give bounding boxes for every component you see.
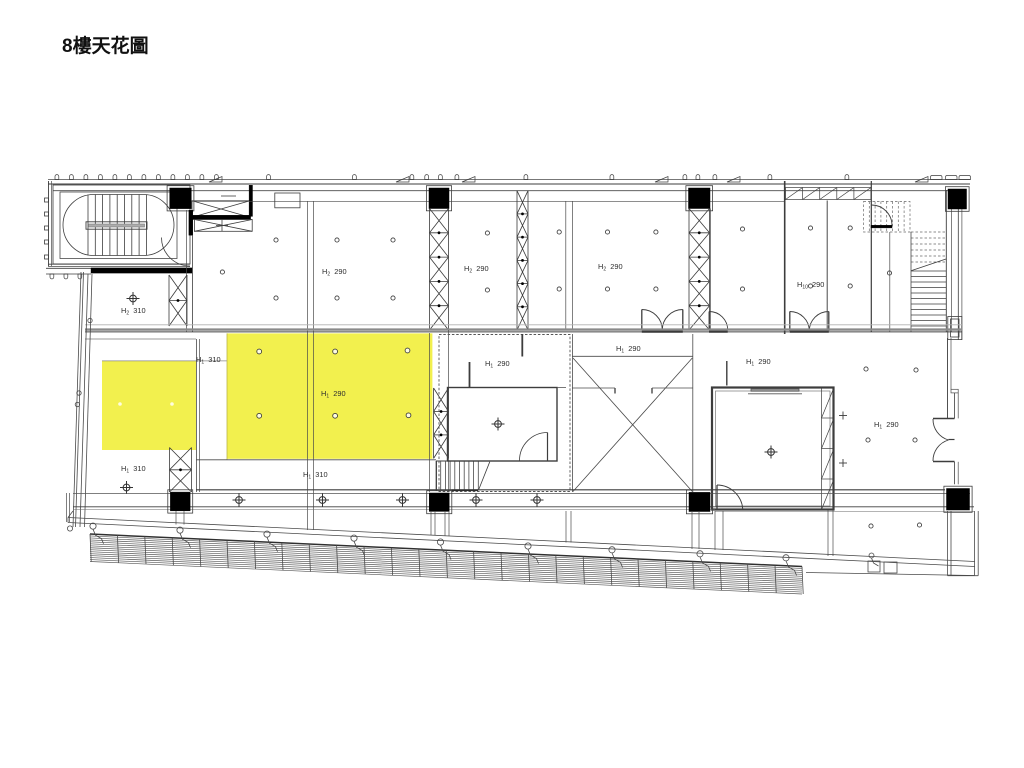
svg-text:8樓天花圖: 8樓天花圖 xyxy=(62,34,149,57)
